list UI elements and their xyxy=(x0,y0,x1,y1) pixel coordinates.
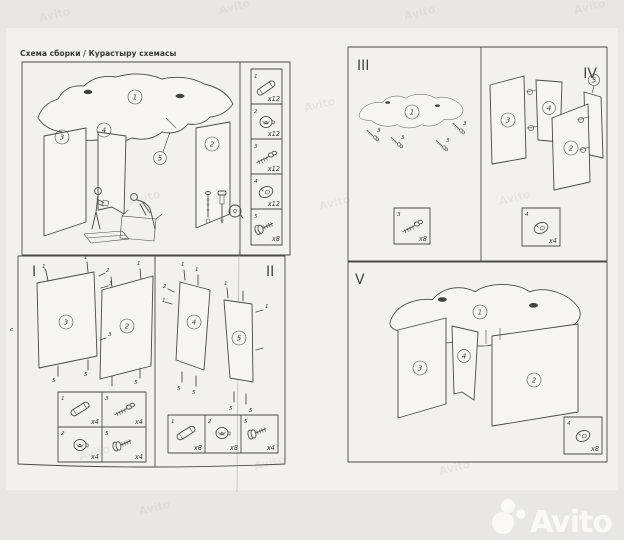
fastener-marker: 1 xyxy=(224,281,228,287)
fastener-marker: 1 xyxy=(137,261,141,267)
part-cell-qty: x4 xyxy=(548,237,557,245)
part-cell-num: 2 xyxy=(61,431,65,437)
part-cell-qty: x8 xyxy=(193,444,202,452)
step2-panel-b-label: 5 xyxy=(237,335,242,343)
label-right-panel: 2 xyxy=(210,141,215,149)
hardware-item-num: 4 xyxy=(254,179,258,185)
avito-logo-watermark: Avito xyxy=(492,499,612,540)
fastener-marker: 5 xyxy=(249,408,253,414)
fastener-marker: 5 xyxy=(229,406,233,412)
part-cell-num: 1 xyxy=(61,396,65,402)
part-cell-qty: x8 xyxy=(418,235,427,243)
page-title: Схема сборки / Курастыру схемасы xyxy=(20,49,176,58)
fastener-marker: 5 xyxy=(84,372,88,378)
fastener-marker: 5 xyxy=(134,380,138,386)
avito-logo-circle xyxy=(501,499,515,513)
hardware-item-qty: x12 xyxy=(267,200,280,208)
step5-top-label: 1 xyxy=(478,309,482,317)
part-cell-num: 1 xyxy=(171,419,175,425)
part-cell-qty: x8 xyxy=(229,444,238,452)
fastener-marker: 1 xyxy=(162,298,166,304)
hardware-item-qty: x12 xyxy=(267,95,280,103)
fastener-marker: 3 xyxy=(463,121,467,127)
part-cell-qty: x4 xyxy=(134,418,143,426)
scanned-assembly-sheet: Avito Avito Avito Avito Avito Avito Avit… xyxy=(0,0,624,540)
hardware-item-qty: x12 xyxy=(267,165,280,173)
step2-panel-a-label: 4 xyxy=(192,319,196,327)
fastener-marker: 1 xyxy=(195,267,199,273)
step-1-label: I xyxy=(32,264,36,280)
fastener-marker: 3 xyxy=(108,332,112,338)
label-left-panel: 3 xyxy=(60,134,64,142)
fastener-marker: 2 xyxy=(106,268,110,274)
step4-left-label: 3 xyxy=(506,117,510,125)
step1-panel-a-label: 3 xyxy=(64,319,68,327)
hardware-item-num: 5 xyxy=(254,214,258,220)
avito-logo-circle xyxy=(516,509,525,518)
label-brace: 5 xyxy=(158,155,163,163)
part-cell-qty: x8 xyxy=(590,445,599,453)
avito-wordmark: Avito xyxy=(530,505,612,540)
fastener-marker: 5 xyxy=(177,386,181,392)
watermark-tile: Avito xyxy=(218,0,253,17)
part-cell-qty: x4 xyxy=(266,444,275,452)
hardware-item-qty: x12 xyxy=(267,130,280,138)
label-center-panel: 4 xyxy=(102,127,106,135)
hardware-item-num: 1 xyxy=(254,74,258,80)
part-cell-num: 4 xyxy=(525,212,529,218)
fastener-marker: 3 xyxy=(401,135,405,141)
part-cell-qty: x4 xyxy=(90,418,99,426)
fastener-marker: 5 xyxy=(52,378,56,384)
step4-right-label: 2 xyxy=(569,145,574,153)
part-cell-num: 3 xyxy=(397,212,401,218)
fastener-marker: 1 xyxy=(181,262,185,268)
part-cell-num: 2 xyxy=(208,419,212,425)
assembly-diagram-canvas: Avito Avito Avito Avito Avito Avito Avit… xyxy=(0,0,624,540)
watermark-tile: Avito xyxy=(138,497,173,517)
label-top-panel: 1 xyxy=(133,94,137,102)
step3-panel-label: 1 xyxy=(410,109,414,117)
step-3-label: III xyxy=(357,58,369,74)
part-cell-num: 5 xyxy=(105,431,109,437)
part-cell-num: 5 xyxy=(244,419,248,425)
step-2-label: II xyxy=(266,264,274,280)
step4-strip-callout: 5 xyxy=(592,77,597,85)
hardware-item-num: 3 xyxy=(254,144,258,150)
step5-center-label: 4 xyxy=(462,353,466,361)
fastener-marker: 1 xyxy=(42,264,46,270)
hardware-item-qty: x8 xyxy=(271,235,280,243)
side-mark: c xyxy=(10,327,13,333)
step4-center-label: 4 xyxy=(547,105,551,113)
fastener-marker: 3 xyxy=(109,281,113,287)
fastener-marker: 3 xyxy=(446,138,450,144)
fastener-marker: 5 xyxy=(192,390,196,396)
watermark-tile: Avito xyxy=(573,0,608,17)
avito-logo-circle xyxy=(492,512,514,534)
part-cell-qty: x4 xyxy=(90,453,99,461)
fastener-marker: 1 xyxy=(84,255,88,261)
watermark-tile: Avito xyxy=(403,2,438,22)
fastener-marker: 2 xyxy=(163,284,167,290)
step-5-label: V xyxy=(355,272,365,288)
part-cell-num: 4 xyxy=(567,421,571,427)
part-cell-qty: x4 xyxy=(134,453,143,461)
step1-panel-b-label: 2 xyxy=(125,323,130,331)
part-cell-num: 3 xyxy=(105,396,109,402)
step5-right-label: 2 xyxy=(532,377,537,385)
hardware-item-num: 2 xyxy=(254,109,258,115)
fastener-marker: 1 xyxy=(265,304,269,310)
fastener-marker: 3 xyxy=(377,128,381,134)
step5-left-label: 3 xyxy=(418,365,422,373)
watermark-tile: Avito xyxy=(38,4,73,24)
